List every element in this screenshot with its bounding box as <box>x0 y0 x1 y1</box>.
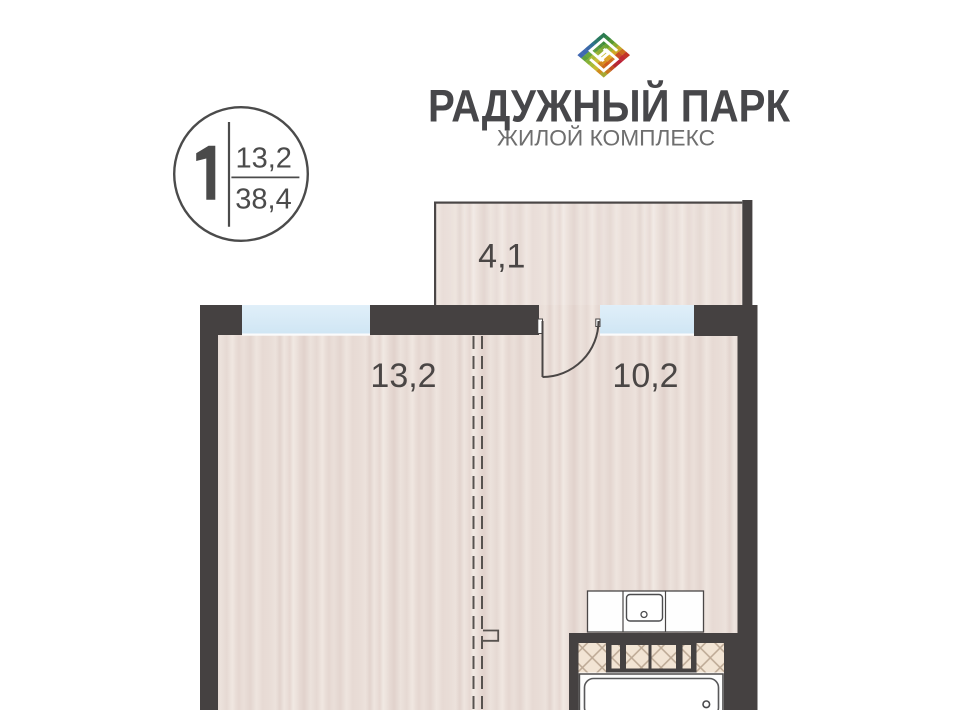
svg-text:38,4: 38,4 <box>235 183 291 215</box>
svg-text:10,2: 10,2 <box>612 357 678 395</box>
svg-text:13,2: 13,2 <box>235 142 291 174</box>
svg-text:РАДУЖНЫЙ ПАРК: РАДУЖНЫЙ ПАРК <box>428 80 790 132</box>
svg-text:13,2: 13,2 <box>370 357 436 395</box>
svg-text:4,1: 4,1 <box>478 238 525 276</box>
svg-text:ЖИЛОЙ КОМПЛЕКС: ЖИЛОЙ КОМПЛЕКС <box>497 126 715 151</box>
